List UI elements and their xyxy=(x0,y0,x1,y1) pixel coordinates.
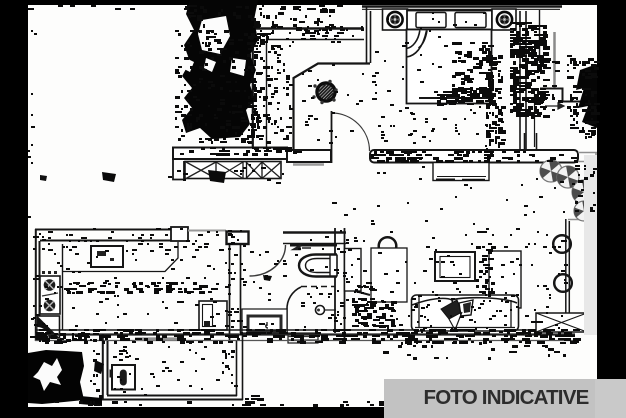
svg-text:FOTO INDICATIVE: FOTO INDICATIVE xyxy=(424,386,589,409)
